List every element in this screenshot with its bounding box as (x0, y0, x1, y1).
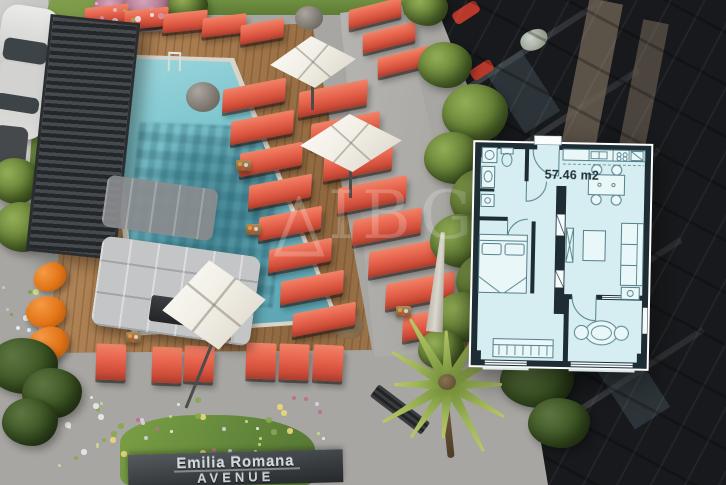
flower (304, 397, 308, 401)
palm-crown (438, 374, 456, 390)
flower (33, 289, 39, 295)
blossom (95, 2, 98, 5)
floor-plan-overlay: 57.46 m2 (469, 134, 654, 375)
stone-sphere-planter (186, 82, 220, 112)
flower (121, 451, 127, 457)
flower (10, 313, 13, 316)
flower (140, 418, 144, 422)
flower (318, 410, 322, 414)
food-tray-item (251, 230, 255, 234)
flower (155, 427, 159, 431)
flower (65, 422, 71, 428)
blossom (131, 18, 135, 22)
blossom (113, 8, 117, 12)
flower (27, 328, 31, 332)
flower (177, 403, 180, 406)
shrub (2, 398, 58, 446)
sun-lounger (95, 343, 126, 380)
flower (90, 396, 93, 399)
flower (74, 456, 78, 460)
flower (258, 443, 261, 446)
flower (28, 290, 32, 294)
flower (81, 449, 87, 455)
sun-lounger (151, 346, 182, 383)
flower (110, 437, 116, 443)
flower (266, 417, 272, 423)
flower (322, 437, 325, 440)
balcony-flower-box (469, 58, 496, 81)
flower (315, 402, 319, 406)
flower (212, 448, 216, 452)
flower (200, 414, 206, 420)
facade-column (561, 0, 623, 152)
side-table (126, 332, 141, 343)
flower (169, 415, 172, 418)
food-tray-item (401, 312, 405, 316)
flower (256, 427, 259, 430)
balcony-flower-box (451, 0, 482, 26)
floor-plan-area-label: 57.46 m2 (545, 168, 617, 184)
flower (195, 397, 201, 403)
complex-entrance-sign: Emilia Romana AVENUE (128, 449, 344, 485)
blossom (135, 16, 141, 22)
flower (195, 413, 201, 419)
flower (100, 402, 103, 405)
shrub (528, 398, 590, 448)
flower (222, 427, 226, 431)
shrub (418, 42, 472, 88)
flower (16, 326, 20, 330)
flower (2, 286, 5, 289)
sun-lounger (312, 344, 344, 382)
flower (58, 464, 61, 467)
side-table (236, 160, 251, 171)
flower (98, 414, 104, 420)
flower (287, 428, 293, 434)
umbrella-pole (311, 84, 314, 110)
flower (277, 404, 283, 410)
side-table (246, 224, 261, 235)
food-tray-item (241, 166, 245, 170)
flower (118, 423, 124, 429)
stone-sphere-planter (295, 6, 323, 30)
flower (102, 438, 106, 442)
flower (281, 410, 287, 416)
food-tray-item (131, 338, 135, 342)
flower (245, 420, 248, 423)
sun-lounger (245, 342, 276, 379)
blossom (123, 9, 126, 12)
flower (259, 437, 262, 440)
flower (170, 430, 173, 433)
sun-lounger (278, 343, 309, 380)
side-table (396, 306, 411, 317)
flower (93, 403, 99, 409)
balcony-white-flowers (517, 26, 550, 54)
umbrella-pole (349, 168, 352, 198)
flower (292, 396, 296, 400)
flower (96, 443, 99, 446)
blossom (158, 13, 164, 19)
flower (96, 408, 100, 412)
car-roof (0, 61, 45, 98)
aerial-resort-render: Emilia Romana AVENUE IBG (0, 0, 726, 485)
flower (317, 432, 320, 435)
flower (6, 308, 9, 311)
flower (111, 431, 117, 437)
blossom (149, 6, 153, 10)
blossom (150, 13, 154, 17)
flower (271, 429, 277, 435)
flower (144, 436, 148, 440)
pool-ladder (168, 52, 182, 71)
